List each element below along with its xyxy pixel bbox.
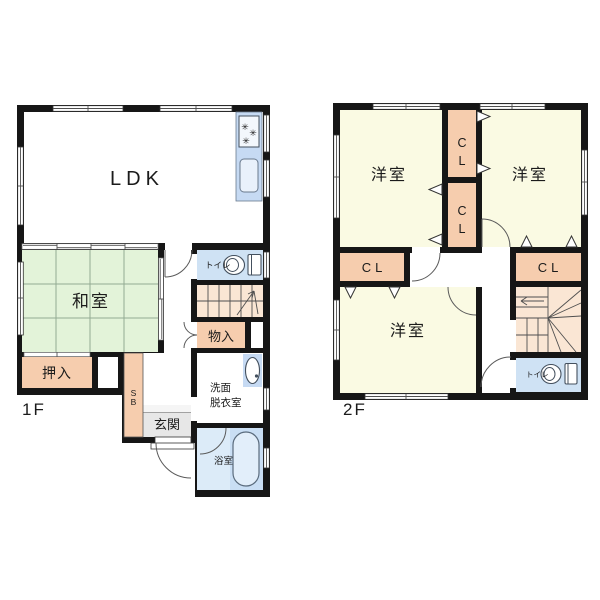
2f-toilet-door-opening: [510, 360, 516, 388]
1f-corridor-door-opening: [165, 243, 192, 250]
floor-1f-plan: ✳ ✳ ✳ LDK 和室 押入 物入 トイレ 玄関 S B 洗: [17, 105, 270, 497]
1f-kitchen-counter: ✳ ✳ ✳: [236, 112, 262, 201]
1f-ldk-label: LDK: [110, 168, 164, 190]
2f-stairs-entry-opening: [510, 320, 516, 352]
1f-entrance-porch-step: [151, 443, 194, 449]
svg-text:✳: ✳: [242, 136, 250, 146]
1f-washitsu-corridor-sliding-doors: [159, 258, 164, 340]
floorplan-canvas: ✳ ✳ ✳ LDK 和室 押入 物入 トイレ 玄関 S B 洗: [0, 0, 600, 600]
2f-bedroom-bottom-label: 洋室: [390, 322, 426, 340]
1f-entrance-door-leaf: [155, 437, 191, 444]
2f-floor-label: 2F: [343, 400, 367, 419]
1f-bathroom-label: 浴室: [214, 455, 233, 467]
2f-hall: [410, 253, 510, 287]
1f-toilet-label: トイレ: [205, 260, 231, 270]
kitchen-sink-icon: [240, 159, 258, 192]
1f-ldk-washitsu-sliding-doors: [22, 244, 158, 250]
2f-bedroom-tl-label: 洋室: [371, 166, 407, 184]
svg-text:✳: ✳: [249, 128, 257, 138]
1f-storage-label: 物入: [208, 329, 234, 344]
2f-bedroom-tl-door-opening: [412, 247, 440, 253]
bathtub-icon: [233, 432, 259, 486]
1f-washitsu-label: 和室: [72, 292, 110, 311]
2f-bedroom-tr-door-opening: [482, 247, 510, 253]
2f-corridor: [482, 287, 510, 393]
1f-oshiire-label: 押入: [42, 365, 72, 381]
1f-floor-label: 1F: [22, 400, 46, 419]
1f-toilet-door-opening: [191, 254, 197, 279]
1f-alcove: [98, 357, 118, 388]
2f-closet-center-mid-label-c: C: [457, 204, 466, 218]
2f-toilet-label: トイレ: [526, 370, 549, 379]
2f-bedroom-bottom: [340, 287, 476, 393]
1f-storage-void: [251, 322, 263, 348]
2f-closet-center-top-label-c: C: [457, 136, 466, 150]
1f-washroom-door-opening: [191, 397, 197, 421]
1f-genkan-label: 玄関: [154, 417, 180, 432]
2f-closet-left-label: CL: [362, 260, 387, 275]
2f-closet-center-mid-label-l: L: [459, 222, 466, 236]
washbasin-icon: [243, 354, 262, 387]
svg-text:✳: ✳: [241, 122, 249, 132]
1f-hallway: [143, 353, 191, 405]
1f-genkan-step: [143, 405, 191, 413]
2f-closet-right-label: CL: [538, 260, 563, 275]
1f-washroom-label-line1: 洗面: [210, 382, 231, 394]
1f-oshiire-sliding-doors: [24, 352, 90, 356]
floor-2f-plan: 洋室 洋室 洋室 C L C L CL CL トイレ 2F: [333, 103, 588, 419]
1f-washroom-label-line2: 脱衣室: [210, 396, 242, 409]
1f-shoebox-label-b: B: [131, 397, 137, 407]
2f-closet-center-top-label-l: L: [459, 154, 466, 168]
2f-bedroom-tr-label: 洋室: [512, 166, 548, 184]
floorplan-svg: ✳ ✳ ✳ LDK 和室 押入 物入 トイレ 玄関 S B 洗: [0, 0, 600, 600]
